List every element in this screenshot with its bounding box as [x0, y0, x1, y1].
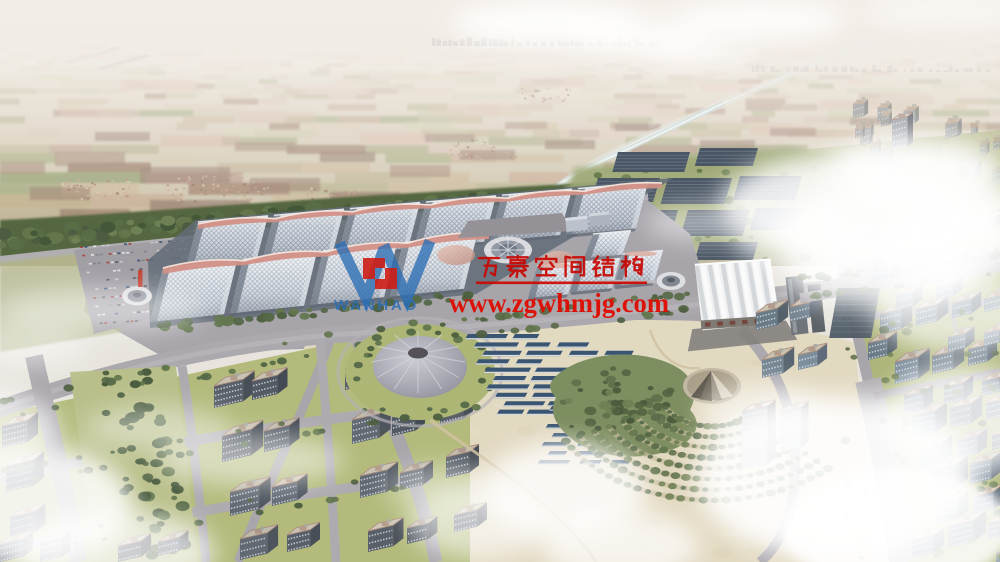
svg-text:WANHAO: WANHAO	[334, 297, 419, 314]
svg-text:www.zgwhmjg.com: www.zgwhmjg.com	[449, 288, 669, 318]
